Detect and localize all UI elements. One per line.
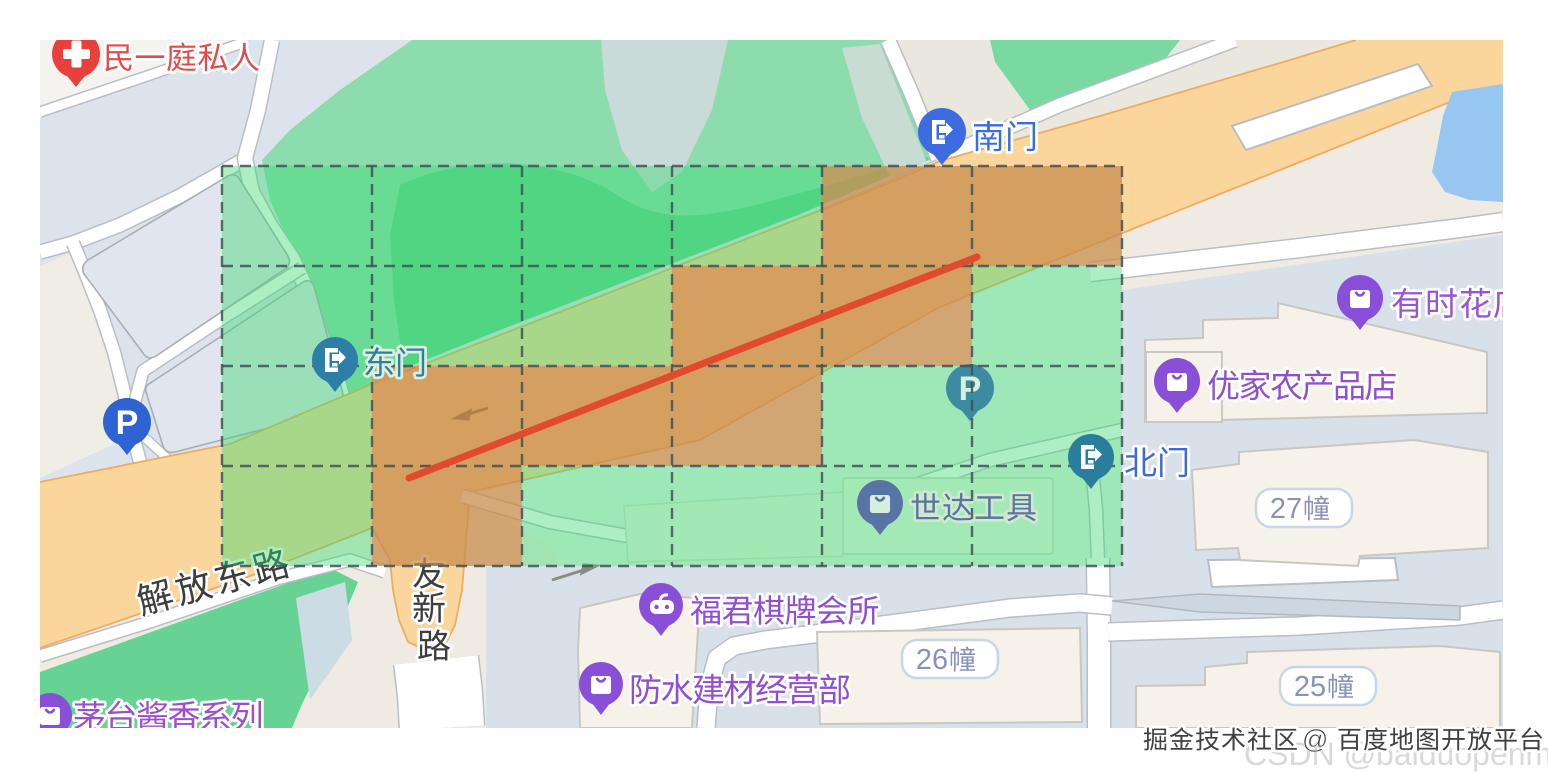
svg-text:25: 25 (1294, 671, 1326, 703)
svg-text:26: 26 (916, 644, 948, 676)
svg-text:27: 27 (1270, 493, 1302, 525)
svg-text:P: P (959, 370, 982, 408)
svg-text:P: P (116, 404, 139, 442)
svg-text:@: @ (1302, 724, 1328, 754)
